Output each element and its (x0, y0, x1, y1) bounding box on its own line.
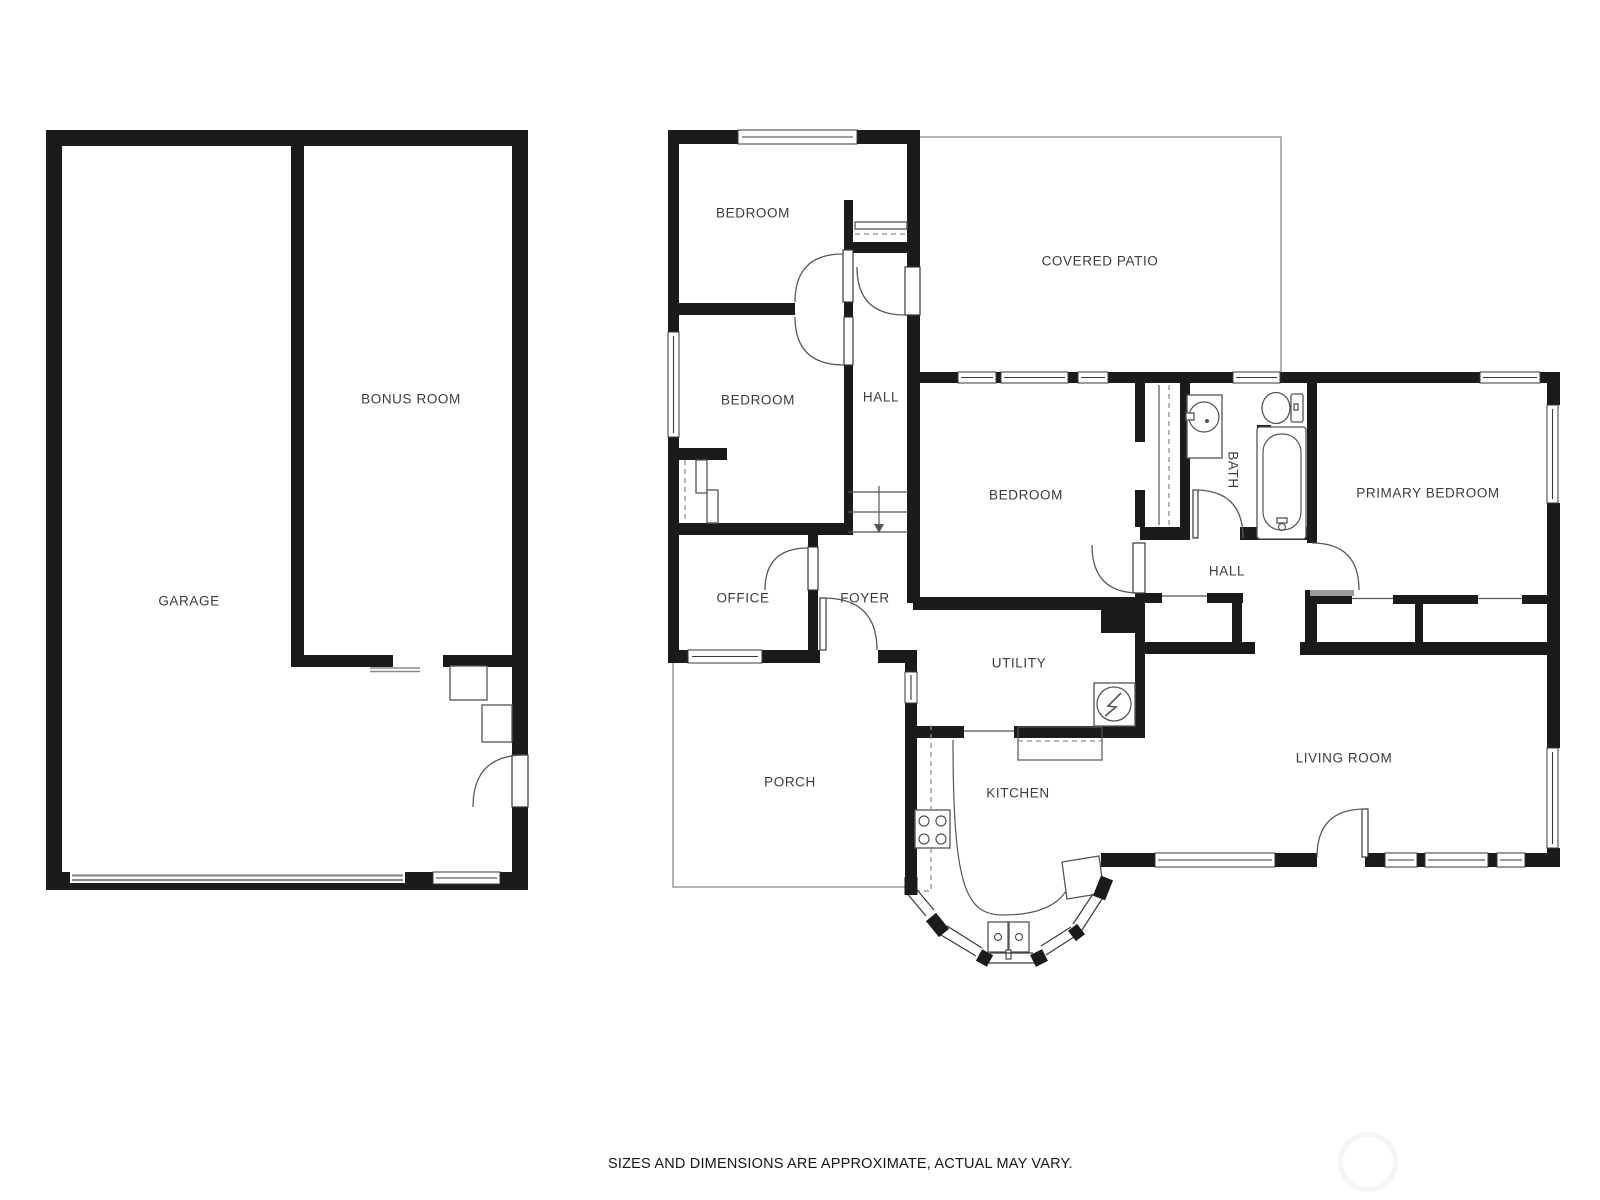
door (473, 755, 528, 807)
room-label-foyer: FOYER (840, 591, 890, 606)
window (1425, 853, 1488, 867)
garage-door (70, 872, 405, 883)
floor-plan-drawing (0, 0, 1600, 1200)
stove-icon (915, 810, 950, 848)
room-label-bonus-room: BONUS ROOM (361, 392, 461, 407)
window (905, 672, 917, 703)
garage-fixtures (450, 666, 512, 742)
window (1233, 372, 1280, 383)
stairs-icon (848, 486, 908, 533)
window (738, 130, 857, 144)
room-label-kitchen: KITCHEN (986, 786, 1049, 801)
bath-sink-icon (1186, 395, 1222, 458)
window (1385, 853, 1417, 867)
window (1078, 372, 1108, 383)
water-heater-icon (1094, 683, 1135, 726)
room-label-hall-upper: HALL (863, 390, 899, 405)
room-label-office: OFFICE (716, 591, 769, 606)
bathtub-icon (1257, 427, 1306, 539)
window (1547, 748, 1558, 848)
window (433, 872, 500, 884)
door (1193, 490, 1243, 538)
bonus-room-slider (370, 668, 420, 672)
window (1155, 853, 1275, 867)
room-label-garage: GARAGE (158, 594, 219, 609)
window (688, 650, 762, 663)
door (795, 317, 853, 365)
door (820, 598, 877, 650)
door (765, 547, 818, 590)
room-label-bedroom-right: BEDROOM (989, 488, 1063, 503)
room-label-hall-lower: HALL (1209, 564, 1245, 579)
window (668, 332, 679, 437)
room-label-bath: BATH (1226, 451, 1241, 488)
window (1480, 372, 1540, 383)
room-label-bedroom-top: BEDROOM (716, 206, 790, 221)
door (857, 267, 920, 315)
door-swings (473, 250, 1368, 857)
window (1001, 372, 1068, 383)
window (1547, 405, 1558, 503)
room-label-utility: UTILITY (992, 656, 1046, 671)
window (1497, 853, 1525, 867)
room-label-living-room: LIVING ROOM (1296, 751, 1393, 766)
hall-closet (855, 222, 907, 234)
disclaimer-text: SIZES AND DIMENSIONS ARE APPROXIMATE, AC… (608, 1156, 1073, 1172)
room-label-covered-patio: COVERED PATIO (1042, 254, 1159, 269)
door (1310, 543, 1359, 596)
door (1092, 543, 1145, 593)
floor-plan-page: GARAGE BONUS ROOM BEDROOM BEDROOM HALL C… (0, 0, 1600, 1200)
room-label-porch: PORCH (764, 775, 816, 790)
window (958, 372, 996, 383)
door (795, 250, 853, 302)
door (1317, 809, 1368, 857)
bedroom-closet (685, 460, 718, 523)
toilet-icon (1262, 393, 1303, 424)
windows (433, 130, 1558, 884)
pocket-door (1159, 385, 1169, 525)
room-label-primary-bedroom: PRIMARY BEDROOM (1356, 486, 1500, 501)
watermark-logo (1338, 1132, 1398, 1192)
room-label-bedroom-mid: BEDROOM (721, 393, 795, 408)
